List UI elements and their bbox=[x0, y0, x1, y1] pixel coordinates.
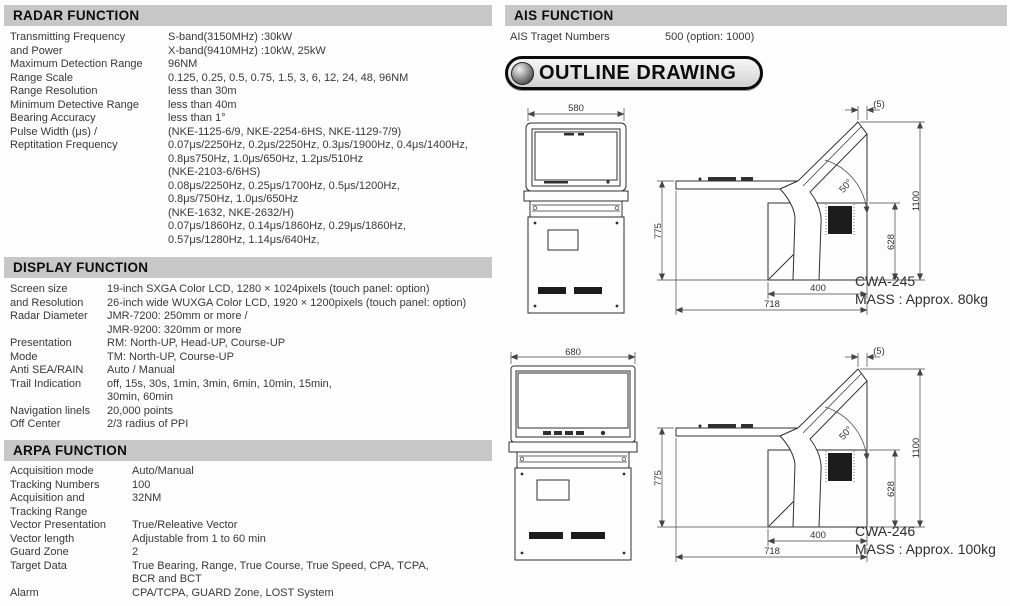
spec-value: S-band(3150MHz) :30kW bbox=[168, 31, 292, 45]
dim-front-width-2: 680 bbox=[565, 348, 581, 358]
dim-base-height-1: 628 bbox=[886, 234, 897, 250]
spec-label: Range Scale bbox=[10, 72, 168, 86]
spec-value: 20,000 points bbox=[107, 405, 173, 419]
spec-row: (NKE-1632, NKE-2632/H) bbox=[10, 207, 496, 221]
spec-label: Acquisition and bbox=[10, 492, 132, 506]
model-mass: MASS : Approx. 100kg bbox=[855, 540, 996, 558]
spec-label bbox=[10, 391, 107, 405]
spec-value: 0.8μs750Hz, 1.0μs/650Hz, 1.2μs/510Hz bbox=[168, 153, 363, 167]
spec-label: Tracking Range bbox=[10, 506, 132, 520]
spec-label: Presentation bbox=[10, 337, 107, 351]
spec-row: Bearing Accuracyless than 1° bbox=[10, 112, 496, 126]
spec-label: and Resolution bbox=[10, 297, 107, 311]
display-function-header: DISPLAY FUNCTION bbox=[4, 257, 492, 278]
spec-row: PresentationRM: North-UP, Head-UP, Cours… bbox=[10, 337, 496, 351]
cwa-246-front-view-drawing: 680 bbox=[503, 348, 643, 573]
spec-row: Trail Indicationoff, 15s, 30s, 1min, 3mi… bbox=[10, 378, 496, 392]
spec-label: Off Center bbox=[10, 418, 107, 432]
spec-value: off, 15s, 30s, 1min, 3min, 6min, 10min, … bbox=[107, 378, 332, 392]
spec-value: RM: North-UP, Head-UP, Course-UP bbox=[107, 337, 285, 351]
arpa-function-table: Acquisition modeAuto/ManualTracking Numb… bbox=[10, 465, 496, 600]
outline-drawing-badge-label: OUTLINE DRAWING bbox=[539, 62, 737, 85]
spec-row: Target DataTrue Bearing, Range, True Cou… bbox=[10, 560, 496, 574]
spec-value: 100 bbox=[132, 479, 150, 493]
spec-label bbox=[10, 573, 132, 587]
spec-row: Pulse Width (μs) /(NKE-1125-6/9, NKE-225… bbox=[10, 126, 496, 140]
spec-label: and Power bbox=[10, 45, 168, 59]
model-name: CWA-245 bbox=[855, 272, 988, 290]
spec-row: AlarmCPA/TCPA, GUARD Zone, LOST System bbox=[10, 587, 496, 601]
radar-function-header: RADAR FUNCTION bbox=[4, 5, 492, 26]
outline-drawing-badge: OUTLINE DRAWING bbox=[505, 56, 763, 90]
spec-label: Target Data bbox=[10, 560, 132, 574]
spec-label: Anti SEA/RAIN bbox=[10, 364, 107, 378]
spec-label: Trail Indication bbox=[10, 378, 107, 392]
arpa-function-header: ARPA FUNCTION bbox=[4, 440, 492, 461]
model-mass: MASS : Approx. 80kg bbox=[855, 290, 988, 308]
dim-base-depth-1: 400 bbox=[810, 283, 826, 294]
spec-value: Adjustable from 1 to 60 min bbox=[132, 533, 266, 547]
spec-value: 19-inch SXGA Color LCD, 1280 × 1024pixel… bbox=[107, 283, 430, 297]
spec-value: Auto/Manual bbox=[132, 465, 194, 479]
spec-label: Vector Presentation bbox=[10, 519, 132, 533]
dim-total-depth-1: 718 bbox=[764, 299, 780, 310]
dim-base-height-2: 628 bbox=[886, 481, 897, 497]
spec-row: 0.8μs/750Hz, 1.0μs/650Hz bbox=[10, 193, 496, 207]
dim-total-height-2: 1100 bbox=[911, 438, 922, 458]
spec-row: and PowerX-band(9410MHz) :10kW, 25kW bbox=[10, 45, 496, 59]
spec-row: Maximum Detection Range96NM bbox=[10, 58, 496, 72]
radar-function-title: RADAR FUNCTION bbox=[13, 8, 139, 23]
display-function-table: Screen size19-inch SXGA Color LCD, 1280 … bbox=[10, 283, 496, 432]
spec-value: 0.57μs/1280Hz, 1.14μs/640Hz, bbox=[168, 234, 320, 248]
spec-label bbox=[10, 166, 168, 180]
spec-row: JMR-9200: 320mm or more bbox=[10, 324, 496, 338]
spec-label: Navigation linels bbox=[10, 405, 107, 419]
spec-label bbox=[10, 153, 168, 167]
spec-label: Vector length bbox=[10, 533, 132, 547]
spec-label: Reptitation Frequency bbox=[10, 139, 168, 153]
spec-value: less than 30m bbox=[168, 85, 236, 99]
dim-angle-2: 50° bbox=[837, 424, 855, 442]
spec-row: BCR and BCT bbox=[10, 573, 496, 587]
spec-row: Tracking Range bbox=[10, 506, 496, 520]
spec-row: 30min, 60min bbox=[10, 391, 496, 405]
spec-label: Radar Diameter bbox=[10, 310, 107, 324]
ais-function-header: AIS FUNCTION bbox=[505, 5, 1007, 26]
ais-function-table: AIS Traget Numbers500 (option: 1000) bbox=[510, 31, 1005, 45]
spec-label: Bearing Accuracy bbox=[10, 112, 168, 126]
spec-row: and Resolution26-inch wide WUXGA Color L… bbox=[10, 297, 496, 311]
spec-row: Minimum Detective Rangeless than 40m bbox=[10, 99, 496, 113]
dim-total-height-1: 1100 bbox=[911, 191, 922, 211]
model-name: CWA-246 bbox=[855, 522, 996, 540]
spec-value: 32NM bbox=[132, 492, 161, 506]
spec-value: X-band(9410MHz) :10kW, 25kW bbox=[168, 45, 326, 59]
dim-offset-2: (5) bbox=[873, 346, 885, 357]
spec-label bbox=[10, 220, 168, 234]
spec-label: Screen size bbox=[10, 283, 107, 297]
spec-value: TM: North-UP, Course-UP bbox=[107, 351, 234, 365]
spec-value: 0.8μs/750Hz, 1.0μs/650Hz bbox=[168, 193, 298, 207]
spec-value: less than 1° bbox=[168, 112, 226, 126]
spec-row: Navigation linels20,000 points bbox=[10, 405, 496, 419]
spec-label bbox=[10, 180, 168, 194]
spec-value: CPA/TCPA, GUARD Zone, LOST System bbox=[132, 587, 334, 601]
arpa-function-title: ARPA FUNCTION bbox=[13, 443, 127, 458]
cwa-246-model-label: CWA-246 MASS : Approx. 100kg bbox=[855, 522, 996, 558]
spec-row: Transmitting FrequencyS-band(3150MHz) :3… bbox=[10, 31, 496, 45]
dim-shelf-height-2: 775 bbox=[653, 470, 664, 486]
spec-value: True Bearing, Range, True Course, True S… bbox=[132, 560, 429, 574]
spec-label bbox=[10, 207, 168, 221]
spec-label: Maximum Detection Range bbox=[10, 58, 168, 72]
dim-total-depth-2: 718 bbox=[764, 546, 780, 557]
spec-value: JMR-9200: 320mm or more bbox=[107, 324, 242, 338]
spec-value: JMR-7200: 250mm or more / bbox=[107, 310, 248, 324]
dim-offset-1: (5) bbox=[873, 99, 885, 110]
spec-label: Minimum Detective Range bbox=[10, 99, 168, 113]
spec-value: 500 (option: 1000) bbox=[665, 31, 754, 45]
spec-value: 96NM bbox=[168, 58, 197, 72]
spec-label: Transmitting Frequency bbox=[10, 31, 168, 45]
spec-label: Mode bbox=[10, 351, 107, 365]
spec-row: Range Resolutionless than 30m bbox=[10, 85, 496, 99]
spec-value: 0.08μs/2250Hz, 0.25μs/1700Hz, 0.5μs/1200… bbox=[168, 180, 400, 194]
spec-value: 30min, 60min bbox=[107, 391, 173, 405]
spec-label bbox=[10, 193, 168, 207]
spec-value: 2/3 radius of PPI bbox=[107, 418, 188, 432]
sphere-icon bbox=[511, 62, 534, 85]
ais-function-title: AIS FUNCTION bbox=[514, 8, 614, 23]
spec-label: Tracking Numbers bbox=[10, 479, 132, 493]
spec-label: Guard Zone bbox=[10, 546, 132, 560]
spec-value: True/Releative Vector bbox=[132, 519, 237, 533]
radar-function-table: Transmitting FrequencyS-band(3150MHz) :3… bbox=[10, 31, 496, 247]
spec-label: Alarm bbox=[10, 587, 132, 601]
spec-label: Acquisition mode bbox=[10, 465, 132, 479]
spec-value: BCR and BCT bbox=[132, 573, 202, 587]
spec-sheet-page: RADAR FUNCTION Transmitting FrequencyS-b… bbox=[0, 0, 1010, 606]
spec-row: Vector lengthAdjustable from 1 to 60 min bbox=[10, 533, 496, 547]
spec-row: Tracking Numbers100 bbox=[10, 479, 496, 493]
dim-angle-1: 50° bbox=[837, 177, 855, 195]
spec-value: 2 bbox=[132, 546, 138, 560]
spec-row: ModeTM: North-UP, Course-UP bbox=[10, 351, 496, 365]
spec-label: Pulse Width (μs) / bbox=[10, 126, 168, 140]
cwa-245-model-label: CWA-245 MASS : Approx. 80kg bbox=[855, 272, 988, 308]
spec-value: (NKE-1632, NKE-2632/H) bbox=[168, 207, 294, 221]
display-function-title: DISPLAY FUNCTION bbox=[13, 260, 148, 275]
spec-row: Reptitation Frequency0.07μs/2250Hz, 0.2μ… bbox=[10, 139, 496, 153]
spec-label: AIS Traget Numbers bbox=[510, 31, 665, 45]
spec-row: Screen size19-inch SXGA Color LCD, 1280 … bbox=[10, 283, 496, 297]
spec-row: Off Center2/3 radius of PPI bbox=[10, 418, 496, 432]
spec-row: 0.57μs/1280Hz, 1.14μs/640Hz, bbox=[10, 234, 496, 248]
spec-value: 0.07μs/2250Hz, 0.2μs/2250Hz, 0.3μs/1900H… bbox=[168, 139, 468, 153]
spec-row: Radar DiameterJMR-7200: 250mm or more / bbox=[10, 310, 496, 324]
spec-row: Anti SEA/RAINAuto / Manual bbox=[10, 364, 496, 378]
spec-label: Range Resolution bbox=[10, 85, 168, 99]
dim-shelf-height-1: 775 bbox=[653, 223, 664, 239]
spec-value: Auto / Manual bbox=[107, 364, 175, 378]
spec-row: 0.07μs/1860Hz, 0.14μs/1860Hz, 0.29μs/186… bbox=[10, 220, 496, 234]
spec-row: Range Scale0.125, 0.25, 0.5, 0.75, 1.5, … bbox=[10, 72, 496, 86]
spec-label bbox=[10, 324, 107, 338]
spec-value: (NKE-1125-6/9, NKE-2254-6HS, NKE-1129-7/… bbox=[168, 126, 401, 140]
spec-value: (NKE-2103-6/6HS) bbox=[168, 166, 260, 180]
spec-value: 0.07μs/1860Hz, 0.14μs/1860Hz, 0.29μs/186… bbox=[168, 220, 406, 234]
spec-row: (NKE-2103-6/6HS) bbox=[10, 166, 496, 180]
spec-row: Guard Zone2 bbox=[10, 546, 496, 560]
dim-front-width-1: 580 bbox=[568, 103, 584, 114]
spec-label bbox=[10, 234, 168, 248]
cwa-245-front-view-drawing: 580 bbox=[508, 103, 643, 328]
spec-row: Acquisition and32NM bbox=[10, 492, 496, 506]
spec-row: AIS Traget Numbers500 (option: 1000) bbox=[510, 31, 1005, 45]
spec-value: 26-inch wide WUXGA Color LCD, 1920 × 120… bbox=[107, 297, 466, 311]
spec-row: Acquisition modeAuto/Manual bbox=[10, 465, 496, 479]
spec-row: Vector PresentationTrue/Releative Vector bbox=[10, 519, 496, 533]
spec-value: less than 40m bbox=[168, 99, 236, 113]
spec-value: 0.125, 0.25, 0.5, 0.75, 1.5, 3, 6, 12, 2… bbox=[168, 72, 408, 86]
spec-row: 0.08μs/2250Hz, 0.25μs/1700Hz, 0.5μs/1200… bbox=[10, 180, 496, 194]
dim-base-depth-2: 400 bbox=[810, 530, 826, 541]
spec-row: 0.8μs750Hz, 1.0μs/650Hz, 1.2μs/510Hz bbox=[10, 153, 496, 167]
